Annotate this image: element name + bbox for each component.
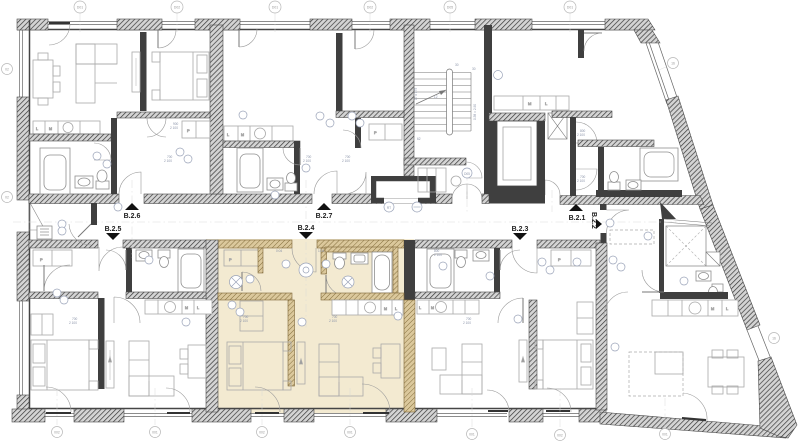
svg-text:16: 16 xyxy=(671,62,675,66)
svg-text:M: M xyxy=(185,306,188,310)
svg-text:D02: D02 xyxy=(174,6,180,10)
svg-text:002: 002 xyxy=(259,431,265,435)
svg-text:001: 001 xyxy=(662,433,668,437)
svg-text:B.2.4: B.2.4 xyxy=(298,225,315,232)
svg-text:2 100: 2 100 xyxy=(577,179,585,183)
svg-text:002: 002 xyxy=(557,434,563,438)
svg-text:P: P xyxy=(229,257,232,262)
svg-text:2 100: 2 100 xyxy=(170,126,178,130)
svg-text:001: 001 xyxy=(152,431,158,435)
svg-text:B.2.7: B.2.7 xyxy=(316,213,333,220)
svg-text:B.2.3: B.2.3 xyxy=(512,226,529,233)
svg-text:M: M xyxy=(241,133,244,137)
svg-text:L2: L2 xyxy=(434,95,438,99)
svg-text:2 100: 2 100 xyxy=(164,159,172,163)
svg-text:002: 002 xyxy=(54,431,60,435)
svg-text:D01: D01 xyxy=(567,6,573,10)
svg-text:2 100: 2 100 xyxy=(240,319,248,323)
svg-text:D01: D01 xyxy=(272,6,278,10)
svg-text:P: P xyxy=(187,128,190,133)
svg-text:M: M xyxy=(528,101,531,106)
svg-text:2 100: 2 100 xyxy=(577,133,585,137)
svg-text:62: 62 xyxy=(417,137,421,141)
svg-text:2 100: 2 100 xyxy=(69,321,77,325)
svg-text:B.2.2: B.2.2 xyxy=(590,212,597,229)
svg-text:2 100: 2 100 xyxy=(342,159,350,163)
svg-text:P: P xyxy=(40,257,43,262)
svg-text:30: 30 xyxy=(455,63,459,67)
svg-text:2 100: 2 100 xyxy=(463,321,471,325)
svg-text:D05: D05 xyxy=(447,6,453,10)
svg-text:L: L xyxy=(197,306,199,310)
svg-text:B.2.1: B.2.1 xyxy=(569,215,586,222)
svg-text:2 100: 2 100 xyxy=(329,319,337,323)
svg-text:L: L xyxy=(36,127,38,131)
svg-text:0:04: 0:04 xyxy=(276,249,282,253)
svg-text:P: P xyxy=(374,130,377,135)
svg-text:M: M xyxy=(711,307,714,311)
svg-text:L: L xyxy=(227,133,229,137)
svg-text:02: 02 xyxy=(5,68,9,72)
svg-text:D01: D01 xyxy=(77,6,83,10)
svg-text:L: L xyxy=(726,307,728,311)
svg-text:30: 30 xyxy=(472,67,476,71)
svg-text:2 100: 2 100 xyxy=(434,253,442,257)
svg-text:001: 001 xyxy=(347,431,353,435)
svg-text:001: 001 xyxy=(469,433,475,437)
svg-text:L: L xyxy=(419,306,421,310)
svg-text:02: 02 xyxy=(5,196,9,200)
svg-text:P: P xyxy=(558,257,561,262)
svg-text:16: 16 xyxy=(772,337,776,341)
svg-text:1:04: 1:04 xyxy=(318,249,324,253)
svg-text:M: M xyxy=(49,127,52,131)
svg-text:17 x 175: 17 x 175 xyxy=(414,88,418,100)
svg-text:D05: D05 xyxy=(464,172,470,176)
svg-text:RT: RT xyxy=(387,206,391,210)
svg-text:B.2.5: B.2.5 xyxy=(105,226,122,233)
svg-text:M: M xyxy=(384,307,387,311)
svg-text:0.58 = 2.90: 0.58 = 2.90 xyxy=(473,104,477,120)
svg-text:D02: D02 xyxy=(367,6,373,10)
svg-text:B.2.6: B.2.6 xyxy=(124,213,141,220)
svg-text:M: M xyxy=(431,306,434,310)
svg-text:2 100: 2 100 xyxy=(303,159,311,163)
svg-text:L: L xyxy=(395,307,397,311)
